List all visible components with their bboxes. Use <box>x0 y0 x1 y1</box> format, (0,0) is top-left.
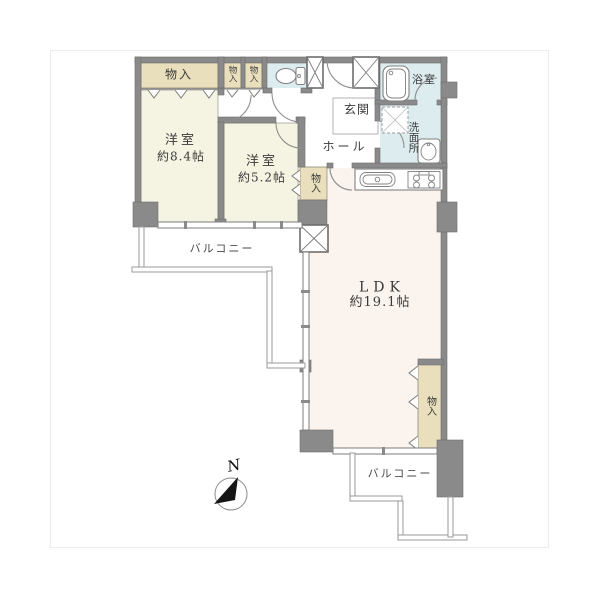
storage-small2-label: 物入 <box>247 66 259 83</box>
bedroom1-name-label: 洋室 <box>165 133 197 149</box>
north-arrow-icon <box>214 477 247 510</box>
floor-plan-drawing <box>0 0 600 600</box>
x-pillar-entrance-icon <box>353 57 379 88</box>
hall-label: ホール <box>322 140 367 155</box>
storage-main-label: 物入 <box>165 68 193 83</box>
door-arc-entrance <box>327 60 355 88</box>
washroom-label: 洗面所 <box>407 121 422 153</box>
balcony-divider <box>448 497 453 537</box>
pillar-balcony-left <box>133 202 158 227</box>
toilet-icon <box>276 68 305 85</box>
balcony-left-label: バルコニー <box>190 242 255 256</box>
pillar-ldk-bottom-left <box>300 430 333 452</box>
x-shaft-icon <box>307 57 323 88</box>
pillar-ldk-right <box>437 202 457 232</box>
floor-plan-page: 洋室 約8.4帖 洋室 約5.2帖 LDK 約19.1帖 物入 物入 物入 物入… <box>0 0 600 600</box>
balcony-bottom-label: バルコニー <box>368 467 433 481</box>
ldk-size-label: 約19.1帖 <box>350 295 411 311</box>
storage-small1-label: 物入 <box>226 66 238 83</box>
washing-machine-pan-icon <box>382 107 408 133</box>
storage-ldk-label: 物入 <box>423 396 438 416</box>
kitchen-counter <box>355 169 443 190</box>
bathroom-label: 浴室 <box>412 73 436 87</box>
x-pillar-ldk-icon <box>300 225 328 252</box>
entrance-label: 玄関 <box>344 103 370 118</box>
bedroom2-size-label: 約5.2帖 <box>238 171 286 186</box>
pillar-top-right <box>441 82 457 98</box>
bedroom1-size-label: 約8.4帖 <box>157 150 205 165</box>
storage-bedroom2-label: 物入 <box>307 173 322 193</box>
bedroom2-name-label: 洋室 <box>246 154 278 170</box>
bathtub-icon <box>383 66 409 101</box>
pillar-bottom-right <box>437 440 463 497</box>
